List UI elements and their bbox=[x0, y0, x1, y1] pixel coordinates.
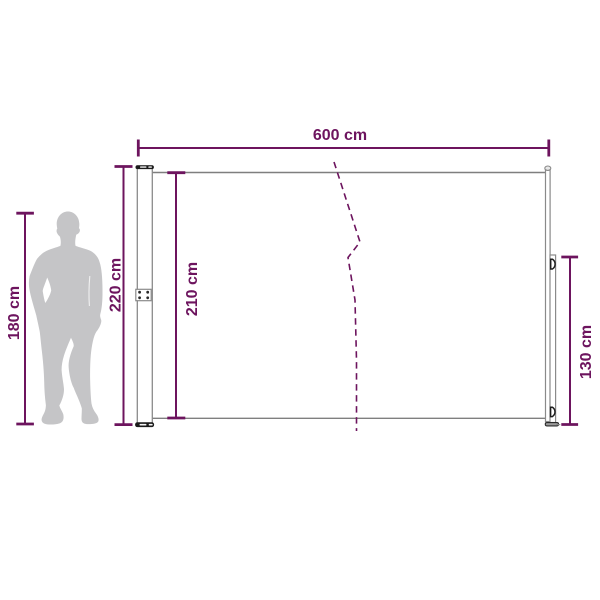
svg-text:130 cm: 130 cm bbox=[578, 325, 595, 379]
svg-text:180 cm: 180 cm bbox=[6, 286, 23, 340]
svg-text:220 cm: 220 cm bbox=[108, 258, 125, 312]
svg-text:210 cm: 210 cm bbox=[184, 262, 201, 316]
svg-text:600 cm: 600 cm bbox=[313, 127, 367, 144]
